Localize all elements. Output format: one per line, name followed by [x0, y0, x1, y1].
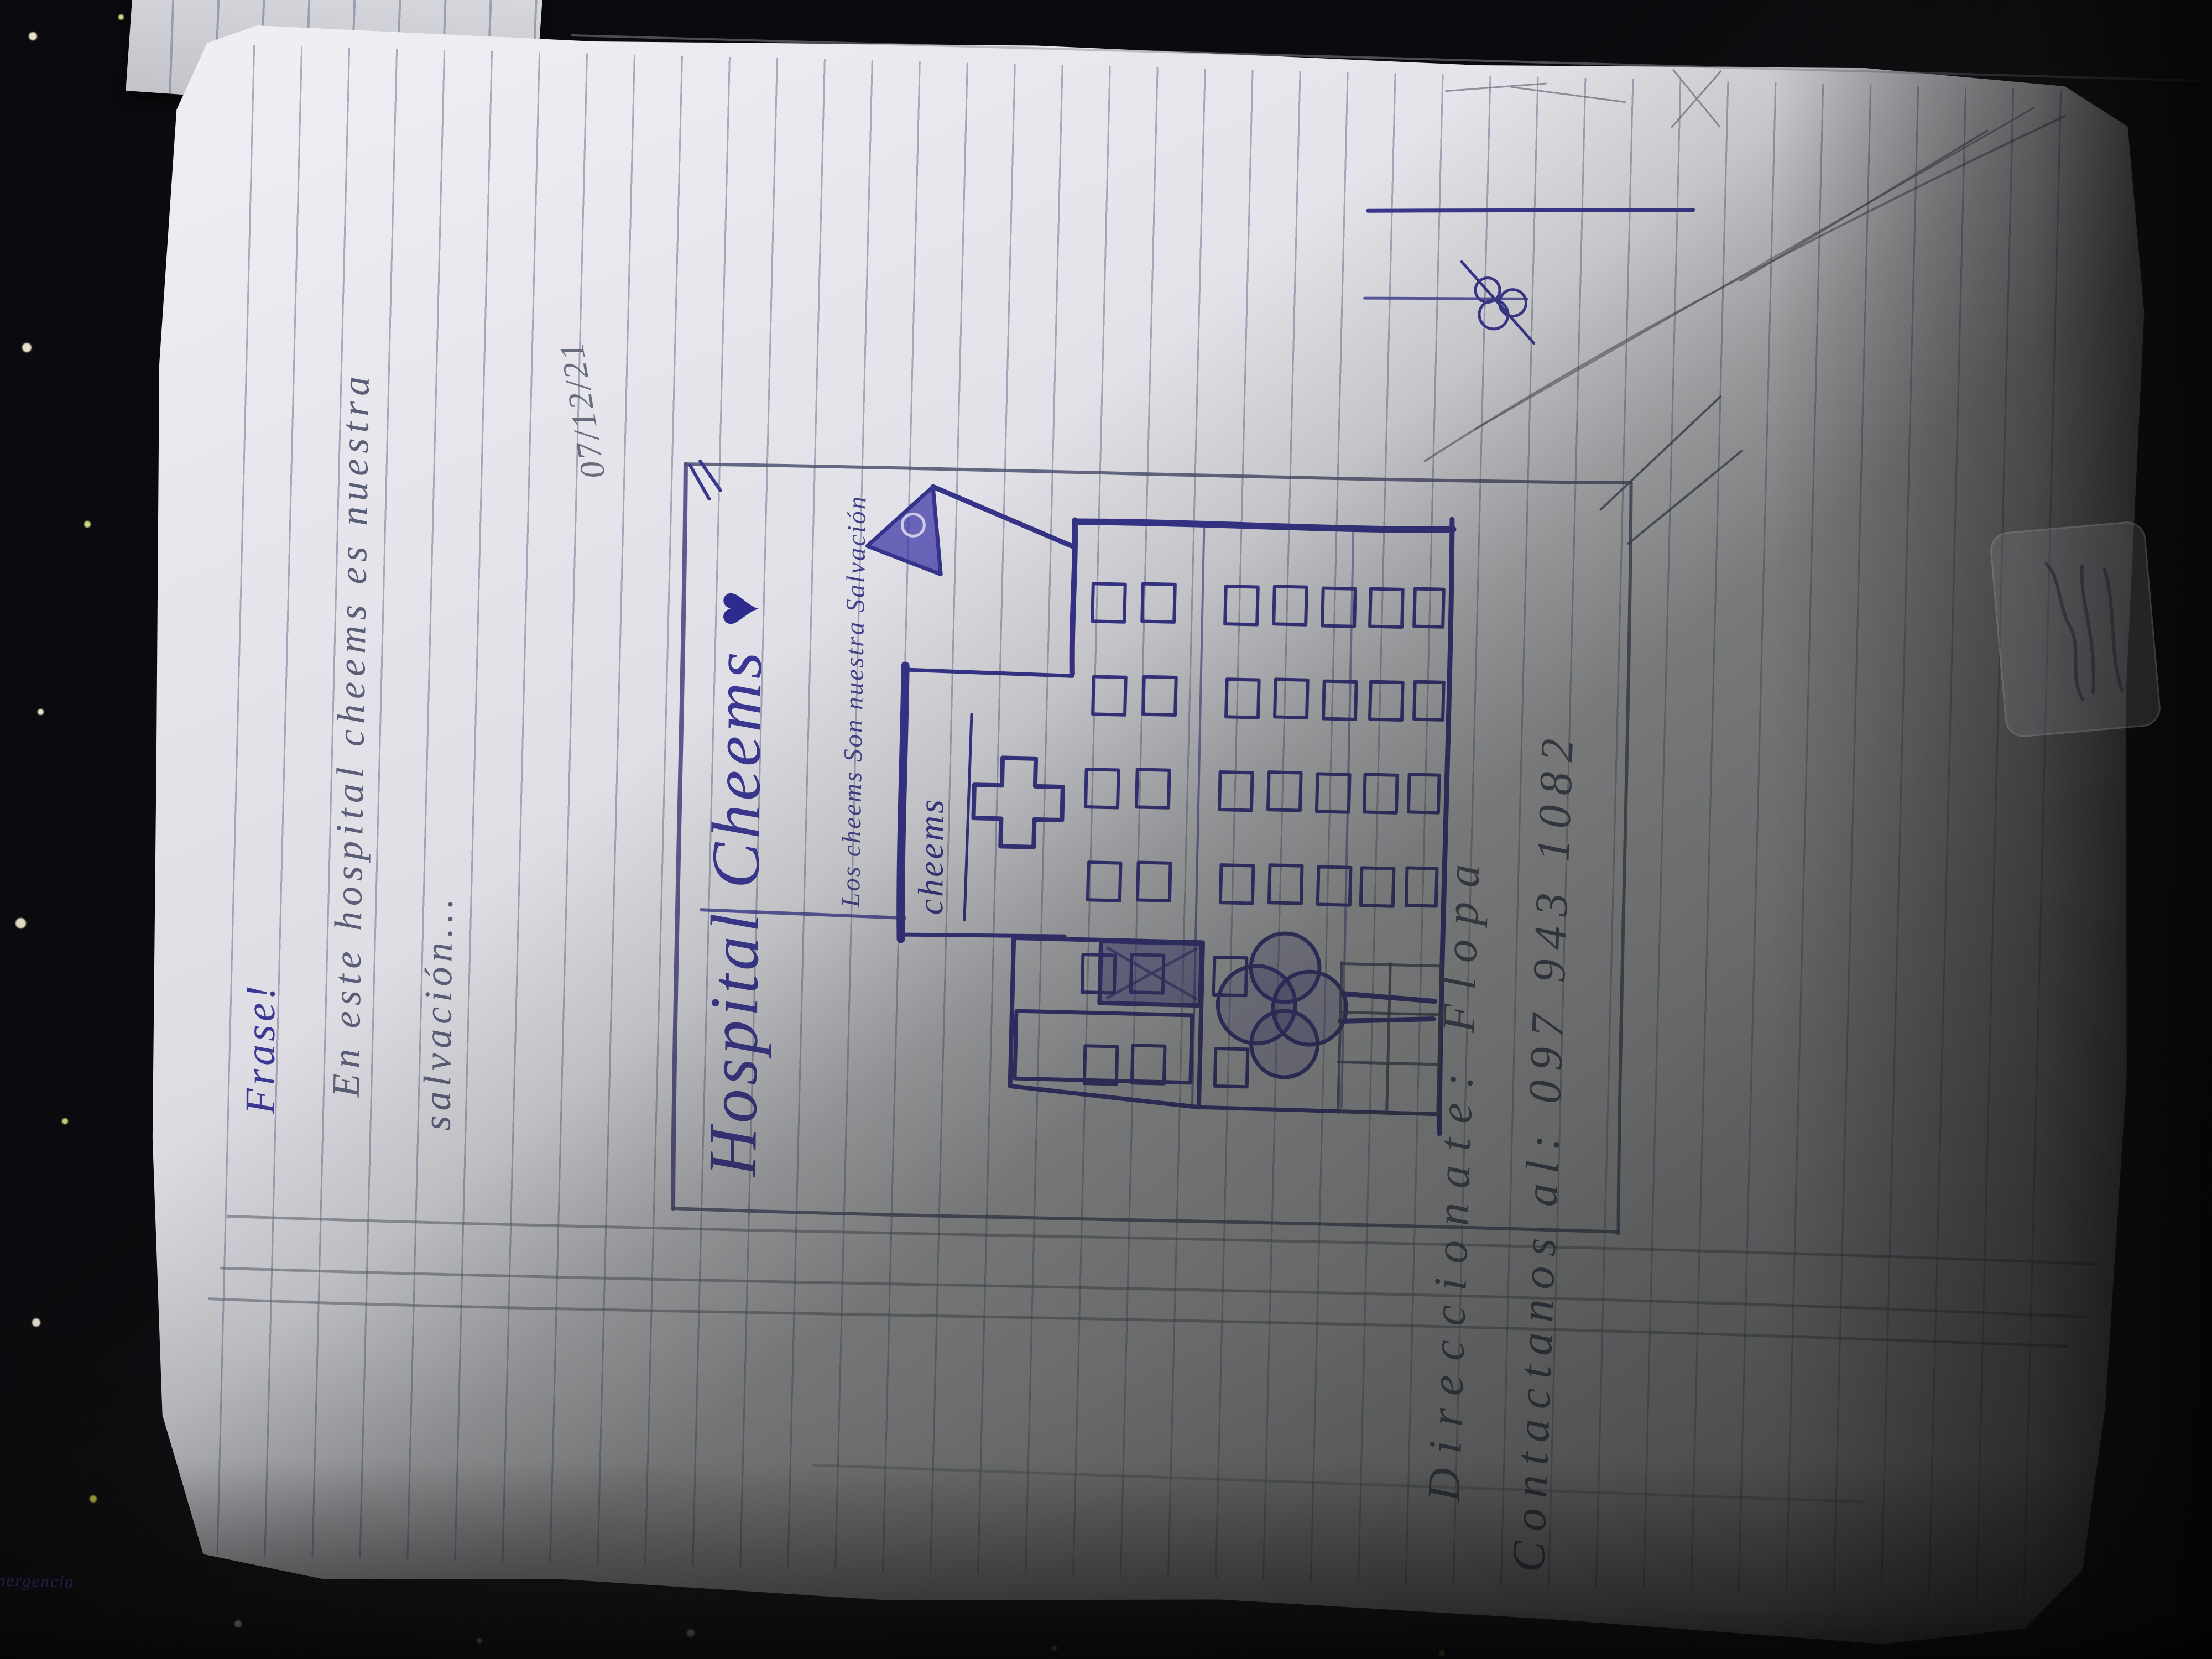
phrase-line-2: salvación...: [415, 893, 462, 1131]
pencil-scrawls: [1425, 64, 2065, 477]
medical-cross-icon: [973, 757, 1063, 848]
heart-icon: ♥: [703, 586, 772, 628]
flag-icon: [867, 485, 1074, 577]
notebook-page: Frase! En este hospital cheems es nuestr…: [0, 0, 2212, 1659]
entrance-pavilion: [1010, 938, 1203, 1107]
poster-title-text: Hospital Cheems: [695, 648, 776, 1177]
page-edge-line: [572, 35, 2198, 81]
poster-title: Hospital Cheems ♥: [693, 586, 778, 1177]
fence-grid: [1337, 961, 1443, 1115]
pen-test-scribble: [1460, 262, 1536, 343]
brand-tab-illegible-text: [2046, 558, 2122, 701]
notebook-brand-tab: [1989, 520, 2162, 738]
margin-lines: [206, 1214, 2097, 1507]
photo-stage: Frase! En este hospital cheems es nuestr…: [0, 0, 2212, 1659]
frase-heading: Frase!: [236, 982, 285, 1114]
cheems-sign-label: cheems: [910, 797, 952, 915]
